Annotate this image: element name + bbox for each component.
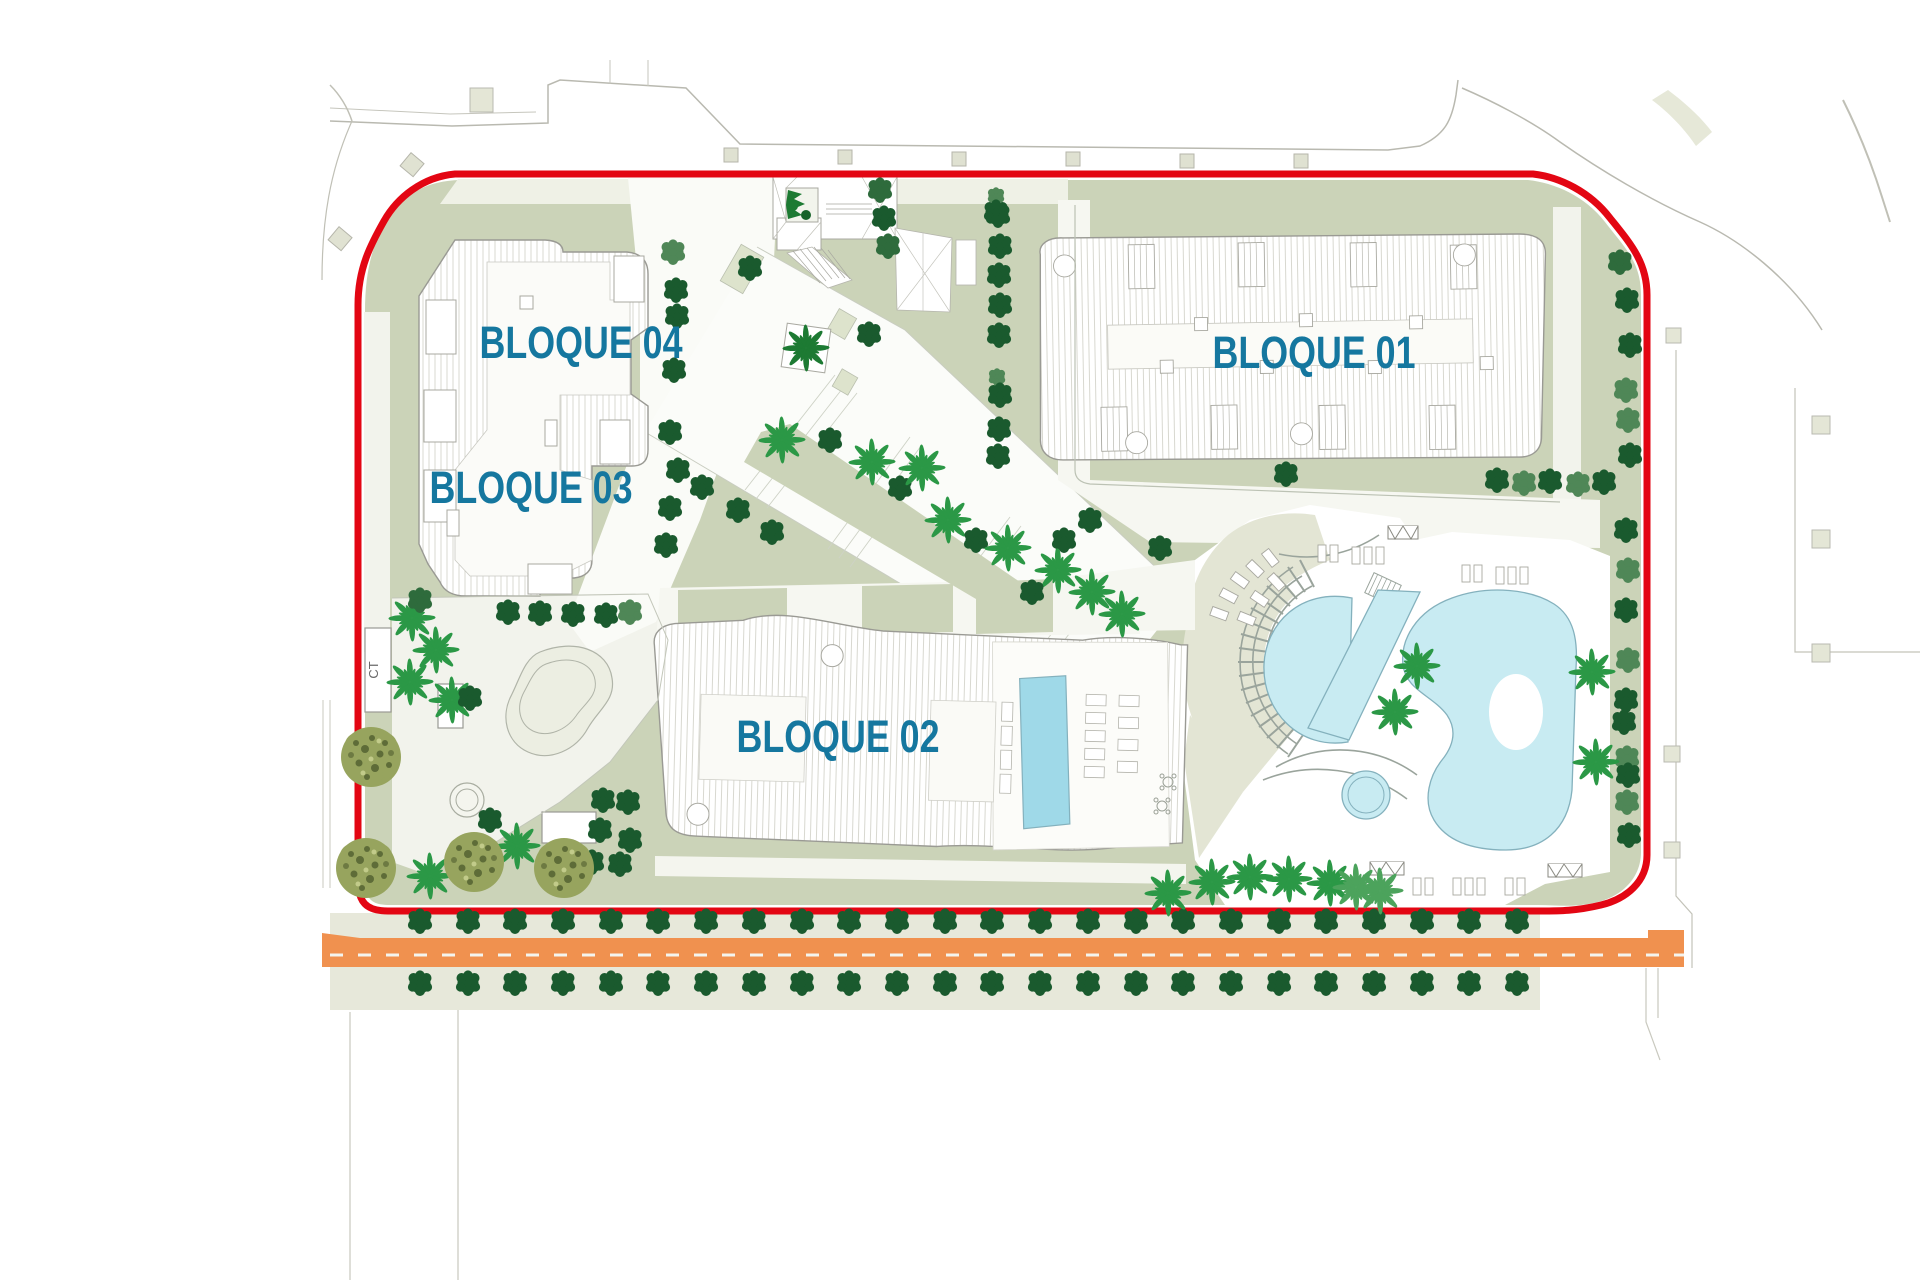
svg-text:BLOQUE 01: BLOQUE 01 <box>1213 327 1416 378</box>
svg-text:BLOQUE 04: BLOQUE 04 <box>480 317 683 368</box>
svg-text:CT: CT <box>366 661 381 678</box>
svg-text:BLOQUE 02: BLOQUE 02 <box>737 711 940 762</box>
svg-text:BLOQUE 03: BLOQUE 03 <box>430 462 633 513</box>
